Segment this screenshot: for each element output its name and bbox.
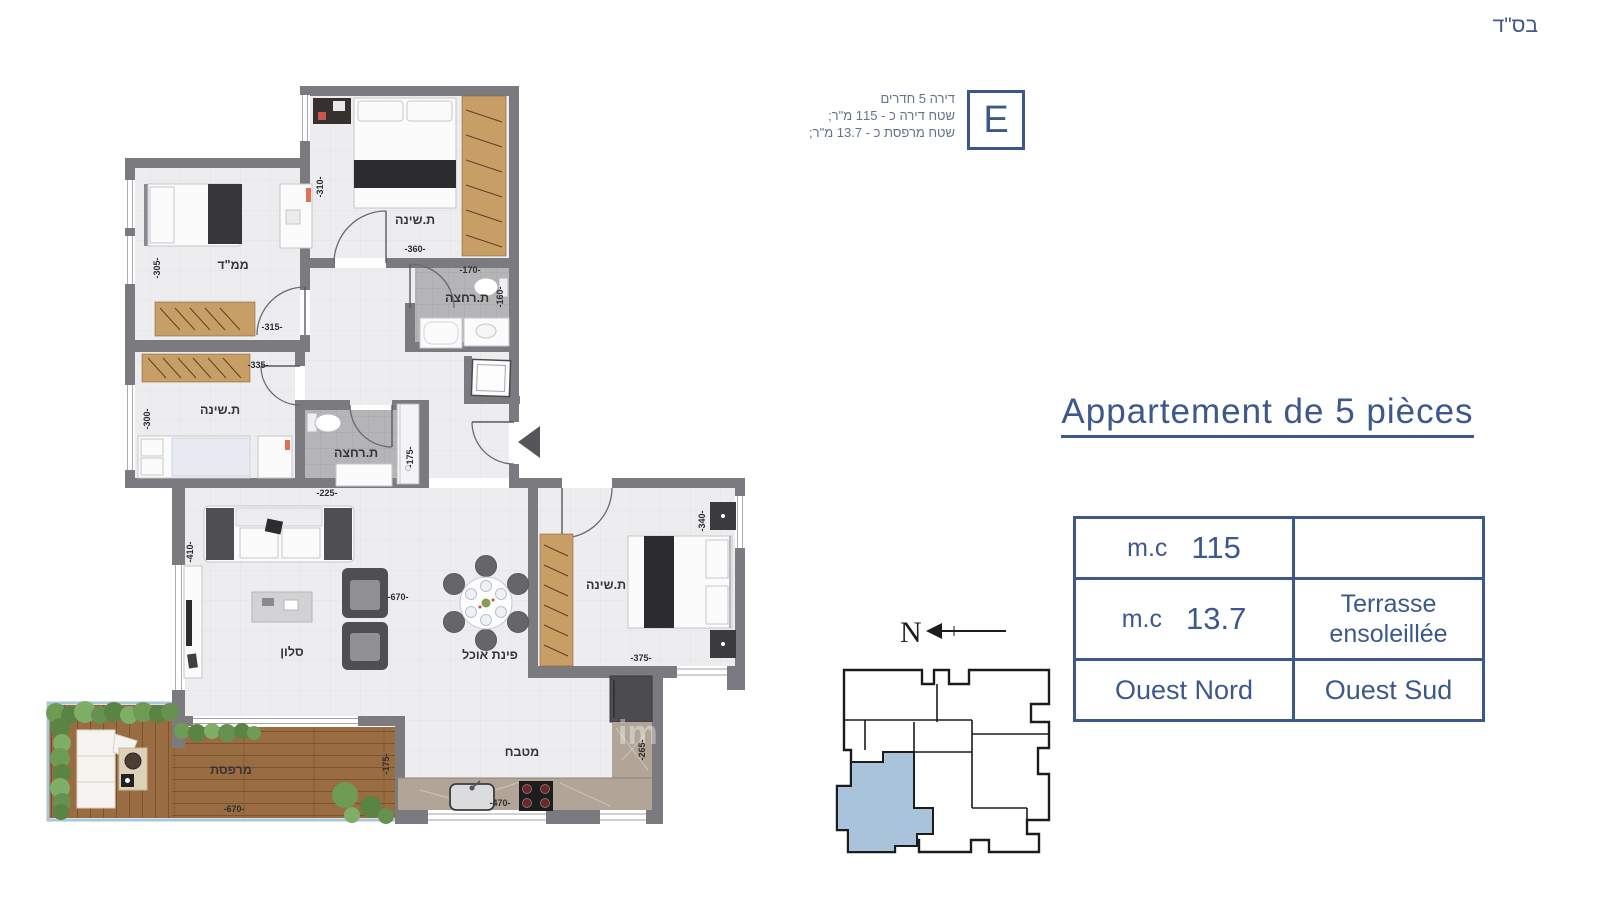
dim-bedroom-right-h: -340- — [697, 510, 707, 531]
window — [677, 666, 727, 678]
spec-cell-terrace-desc: Terrasse ensoleillée — [1295, 580, 1482, 658]
dim-bedroom-top-h: -310- — [315, 176, 325, 197]
terrace-desc-line1: Terrasse — [1341, 589, 1437, 619]
room-label-bath-top: ת.רחצה — [445, 291, 489, 305]
dim-bedroom-left-h: -300- — [142, 408, 152, 429]
dim-living-h: -410- — [185, 541, 195, 562]
dim-mamad-w: -315- — [261, 322, 282, 332]
room-label-terrace: מרפסת — [210, 763, 252, 777]
dim-kitchen-h: -265- — [637, 739, 647, 760]
window — [125, 236, 135, 284]
room-label-bath-mid: ת.רחצה — [334, 446, 378, 460]
room-label-living: סלון — [280, 645, 304, 659]
dim-bath-mid-w: -225- — [316, 488, 337, 498]
window — [428, 810, 546, 824]
spec-cell-orientation-left: Ouest Nord — [1076, 661, 1292, 719]
dim-bedroom-right-w: -375- — [630, 653, 651, 663]
page: בס"ד דירה 5 חדרים שטח דירה כ - 115 מ"ר; … — [0, 0, 1600, 900]
room-label-bedroom-right: ת.שינה — [586, 578, 626, 592]
building-key-plan — [822, 594, 1055, 856]
terrace-desc-line2: ensoleillée — [1329, 619, 1447, 649]
window — [125, 180, 135, 228]
bsd-text: בס"ד — [1448, 14, 1538, 38]
spec-terrace-value: 13.7 — [1186, 601, 1246, 637]
room-label-mamad: ממ"ד — [217, 258, 248, 272]
spec-terrace-unit: m.c — [1122, 605, 1162, 634]
shaft — [471, 359, 510, 396]
dim-kitchen-w: -470- — [489, 798, 510, 808]
dim-terrace-w: -670- — [223, 804, 244, 814]
room-label-bedroom-top: ת.שינה — [395, 213, 435, 227]
dim-bath-top-h: -160- — [495, 286, 505, 307]
spec-cell-terrace-area: m.c 13.7 — [1076, 580, 1292, 658]
spec-area-unit: m.c — [1127, 534, 1167, 563]
dim-bedroom-left-w: -335- — [247, 360, 268, 370]
window — [300, 95, 310, 141]
unit-badge: E — [967, 90, 1025, 150]
window — [172, 565, 185, 690]
page-title-text: Appartement de 5 pièces — [1061, 392, 1473, 438]
dim-bath-mid-h: -175- — [405, 446, 415, 467]
spec-area-value: 115 — [1191, 530, 1240, 566]
dim-terrace-h: -175- — [381, 753, 391, 774]
spec-table: m.c 115 m.c 13.7 Terrasse ensoleillée Ou… — [1073, 516, 1485, 722]
window — [125, 385, 135, 470]
dim-bath-top-w: -170- — [459, 265, 480, 275]
window — [600, 810, 646, 824]
window — [193, 716, 358, 726]
dim-bedroom-top-w: -360- — [404, 244, 425, 254]
page-title: Appartement de 5 pièces — [1010, 392, 1525, 438]
dim-mamad-h: -305- — [152, 257, 162, 278]
spec-cell-area: m.c 115 — [1076, 519, 1292, 577]
floorplan: im ת. — [40, 75, 755, 850]
room-label-bedroom-left: ת.שינה — [200, 403, 240, 417]
window — [735, 496, 745, 548]
spec-cell-empty — [1295, 519, 1482, 577]
spec-cell-orientation-right: Ouest Sud — [1295, 661, 1482, 719]
room-label-kitchen: מטבח — [505, 745, 539, 759]
entry-marker-icon — [518, 426, 540, 458]
dim-living-w: -670- — [387, 592, 408, 602]
room-label-dining: פינת אוכל — [462, 648, 518, 662]
